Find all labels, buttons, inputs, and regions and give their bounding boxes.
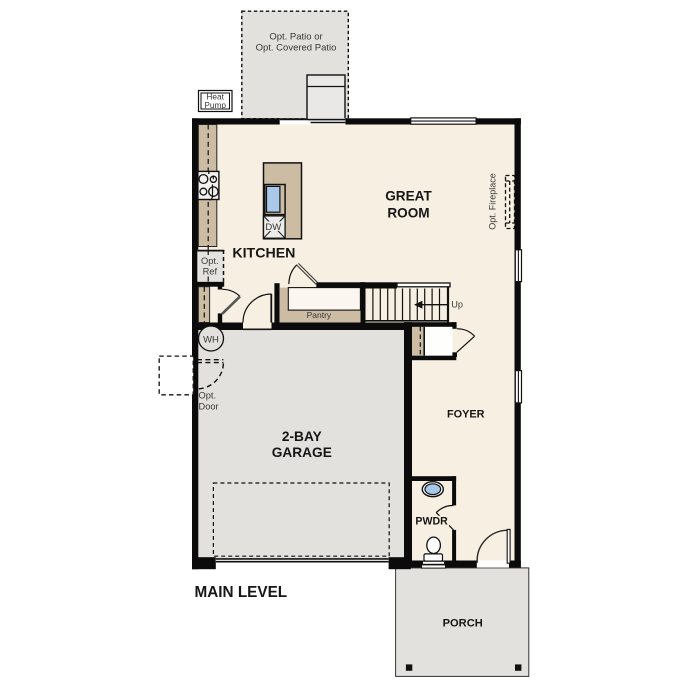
svg-text:Opt. Patio or: Opt. Patio or (269, 31, 322, 42)
svg-text:KITCHEN: KITCHEN (232, 246, 295, 262)
svg-text:Pantry: Pantry (307, 310, 332, 320)
svg-text:Opt.: Opt. (201, 256, 219, 266)
svg-text:GREAT: GREAT (385, 189, 432, 204)
svg-text:Opt. Covered Patio: Opt. Covered Patio (256, 42, 337, 53)
svg-text:MAIN LEVEL: MAIN LEVEL (195, 584, 288, 601)
svg-text:DW: DW (265, 222, 281, 233)
svg-text:Pump: Pump (204, 100, 226, 110)
svg-text:PWDR: PWDR (415, 516, 448, 528)
svg-text:PORCH: PORCH (443, 617, 483, 629)
svg-text:2-BAY: 2-BAY (282, 429, 322, 444)
svg-text:Opt. Fireplace: Opt. Fireplace (488, 173, 498, 230)
svg-text:Opt.: Opt. (199, 390, 217, 400)
svg-text:WH: WH (203, 334, 219, 345)
svg-text:Up: Up (451, 300, 463, 310)
svg-text:Ref: Ref (203, 266, 218, 276)
svg-text:FOYER: FOYER (447, 409, 485, 421)
svg-text:GARAGE: GARAGE (272, 445, 332, 460)
svg-text:ROOM: ROOM (387, 205, 429, 220)
svg-text:Door: Door (199, 401, 219, 411)
